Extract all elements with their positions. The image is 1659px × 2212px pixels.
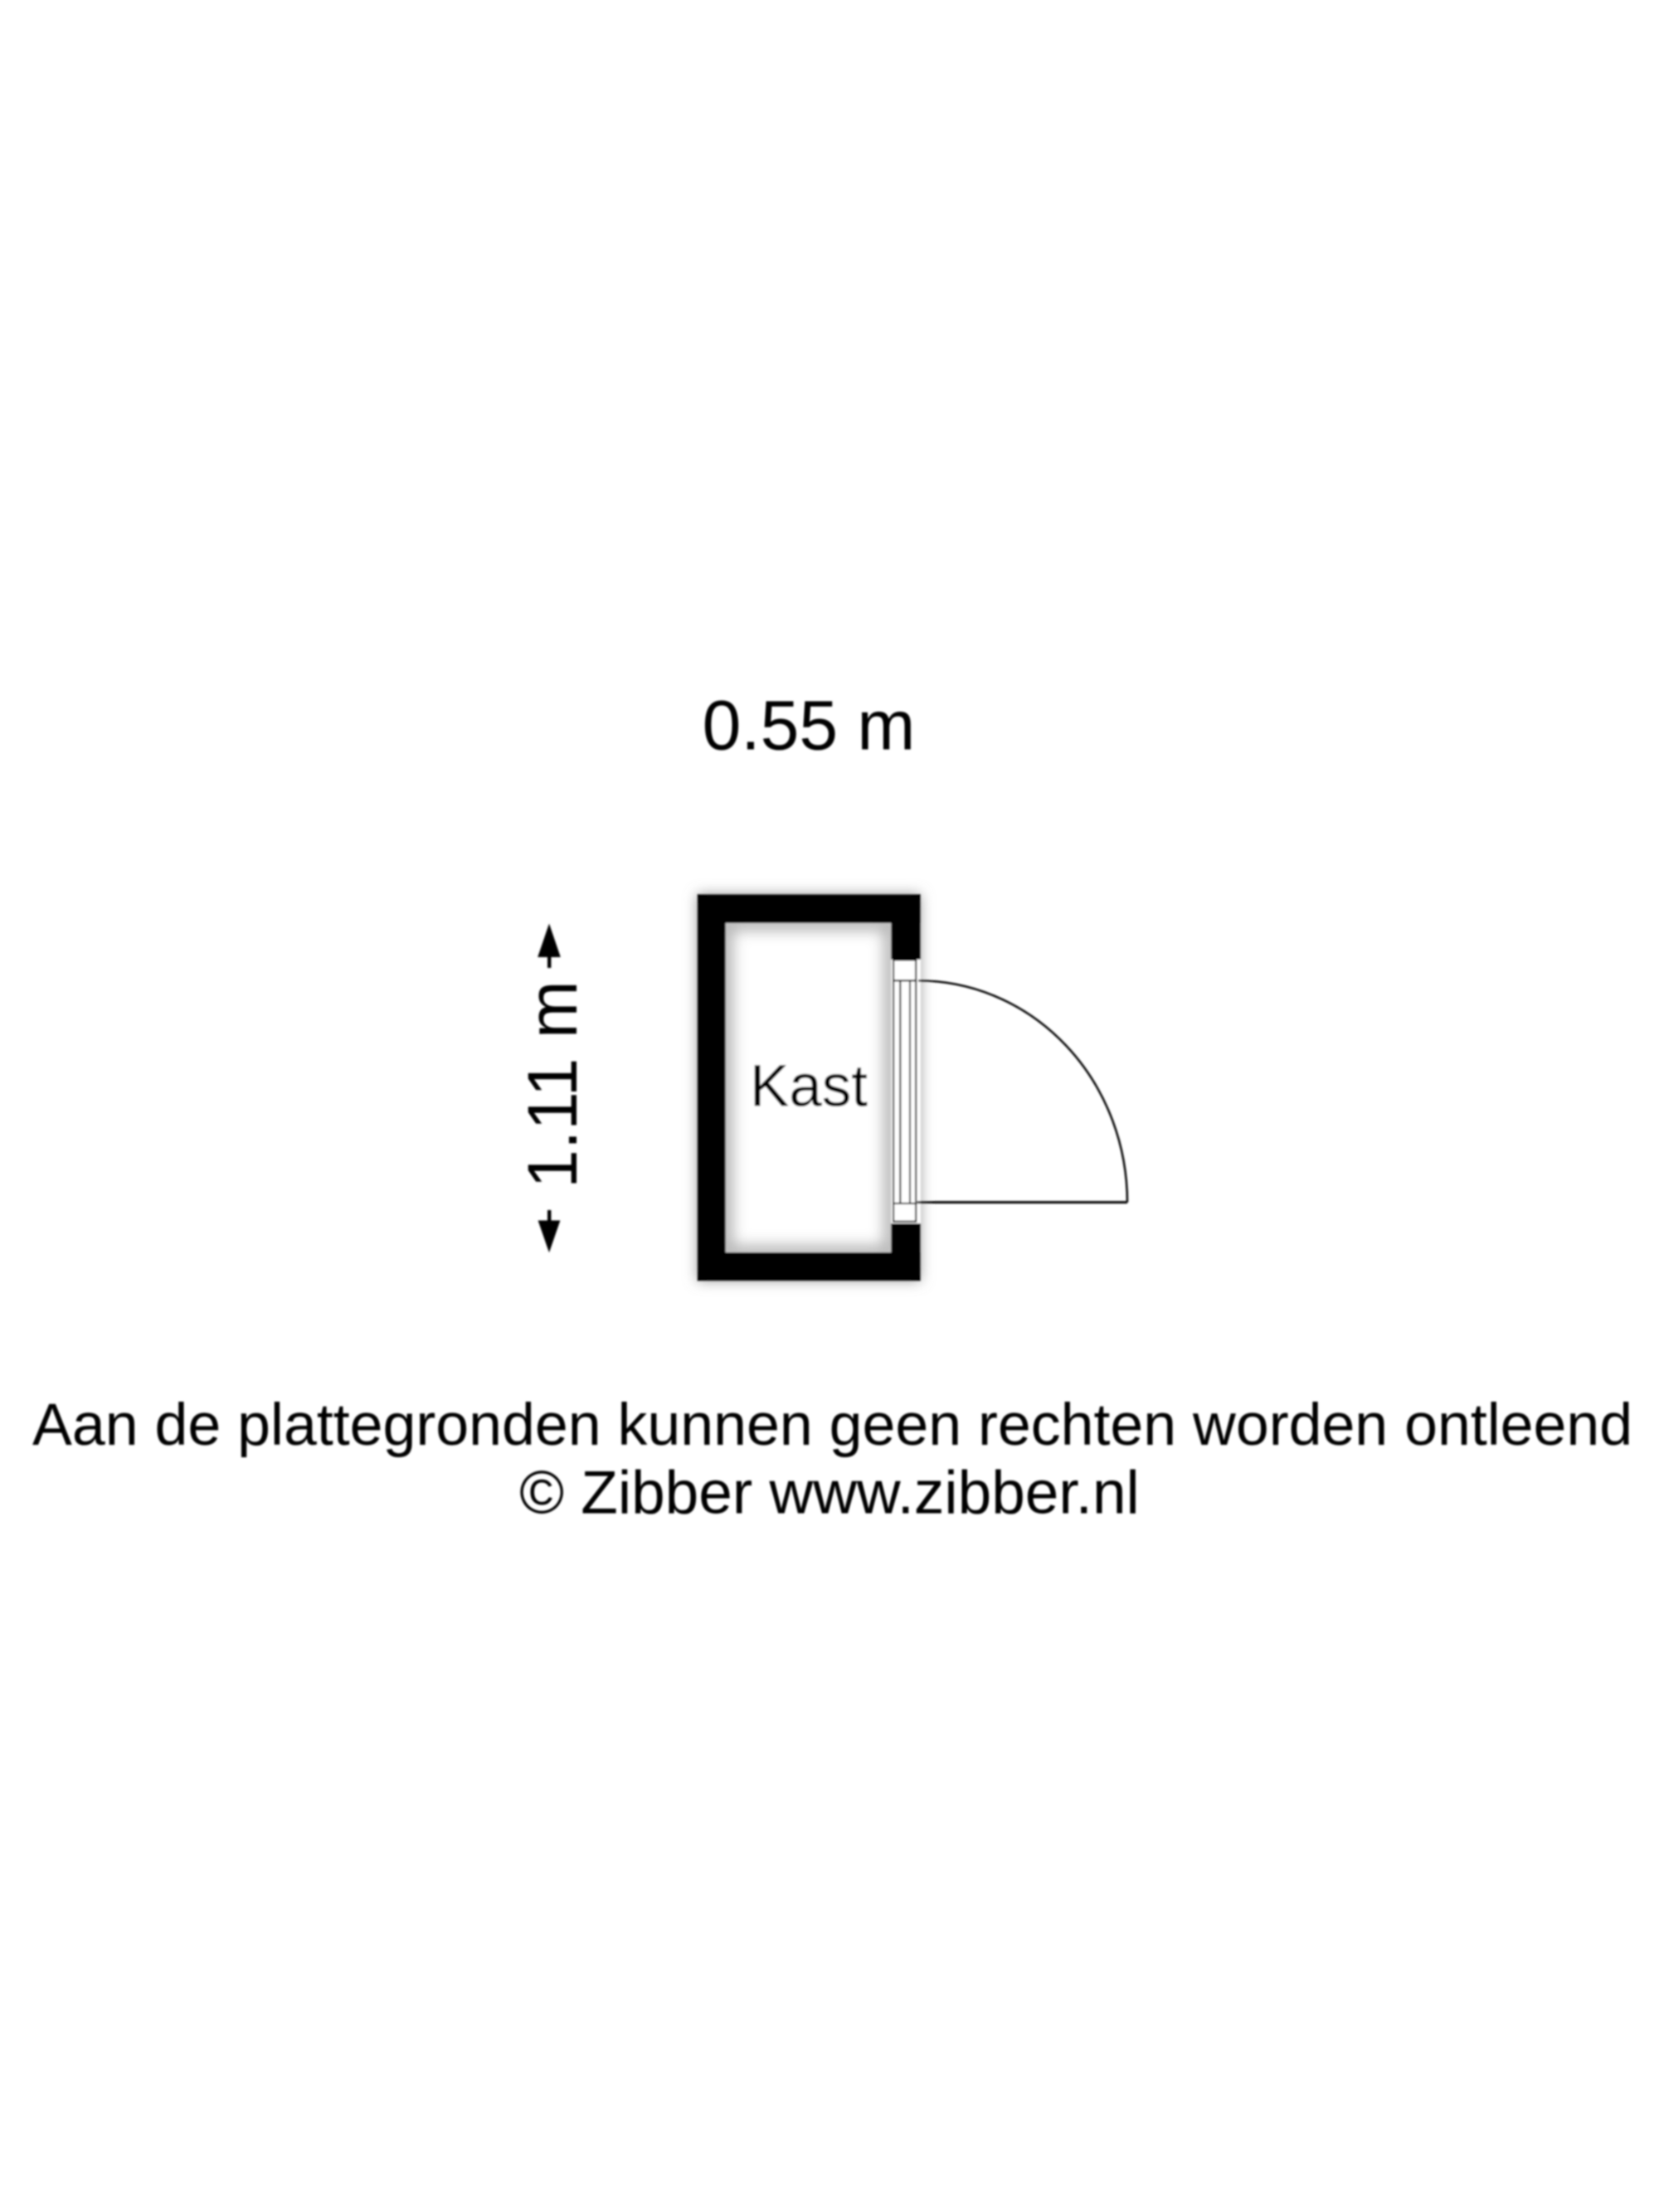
svg-text:Aan de plattegronden kunnen ge: Aan de plattegronden kunnen geen rechten… — [32, 1392, 1632, 1458]
svg-text:© Zibber www.zibber.nl: © Zibber www.zibber.nl — [519, 1460, 1140, 1527]
svg-text:1.11 m: 1.11 m — [513, 980, 591, 1189]
svg-text:0.55 m: 0.55 m — [703, 687, 916, 765]
svg-text:Kast: Kast — [750, 1054, 868, 1120]
